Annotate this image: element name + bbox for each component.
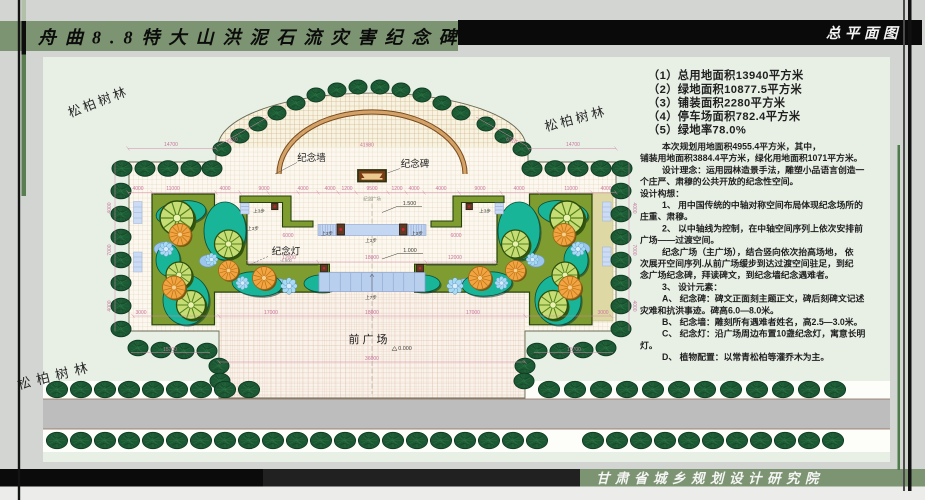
svg-text:设计理念：运用园林造景手法，雕塑小品语言创造一: 设计理念：运用园林造景手法，雕塑小品语言创造一 — [662, 164, 865, 175]
svg-text:广场——过渡空间。: 广场——过渡空间。 — [640, 234, 719, 245]
svg-text:C、 纪念灯：沿广场周边布置10盏纪念灯，寓意长明: C、 纪念灯：沿广场周边布置10盏纪念灯，寓意长明 — [662, 328, 866, 339]
svg-text:4000: 4000 — [107, 202, 113, 213]
svg-text:甘肃省城乡规划设计研究院: 甘肃省城乡规划设计研究院 — [596, 471, 824, 486]
svg-text:A、 纪念碑：碑文正面刻主题正文，碑后刻碑文记述: A、 纪念碑：碑文正面刻主题正文，碑后刻碑文记述 — [662, 293, 865, 304]
svg-text:-4.900: -4.900 — [280, 258, 293, 263]
svg-text:（3）铺装面积2280平方米: （3）铺装面积2280平方米 — [648, 96, 786, 110]
svg-text:D、 植物配置：以常青松柏等灌乔木为主。: D、 植物配置：以常青松柏等灌乔木为主。 — [662, 351, 829, 362]
svg-text:舟曲8.8特大山洪泥石流灾害纪念碑: 舟曲8.8特大山洪泥石流灾害纪念碑 — [37, 28, 466, 48]
svg-text:7000: 7000 — [107, 244, 113, 255]
svg-text:0.000: 0.000 — [398, 346, 412, 352]
svg-text:（1）总用地面积13940平方米: （1）总用地面积13940平方米 — [648, 68, 804, 82]
svg-text:3、 设计元素：: 3、 设计元素： — [662, 281, 722, 292]
svg-text:15700: 15700 — [163, 347, 177, 353]
svg-text:14700: 14700 — [164, 142, 178, 148]
svg-text:4000: 4000 — [631, 300, 637, 311]
svg-text:纪念墙: 纪念墙 — [297, 152, 326, 164]
svg-text:次展开空间序列.从前广场缓步到达过渡空间驻足，到纪: 次展开空间序列.从前广场缓步到达过渡空间驻足，到纪 — [640, 258, 854, 269]
svg-text:上3步: 上3步 — [479, 208, 491, 215]
svg-text:灯。: 灯。 — [640, 339, 658, 350]
svg-text:4000: 4000 — [513, 186, 524, 192]
svg-text:18000: 18000 — [365, 310, 379, 316]
svg-text:（5）绿地率78.0%: （5）绿地率78.0% — [648, 123, 746, 137]
svg-text:上3步: 上3步 — [253, 208, 265, 215]
svg-text:上3步: 上3步 — [321, 230, 333, 237]
svg-text:3000: 3000 — [135, 310, 146, 316]
svg-text:（4）停车场面积782.4平方米: （4）停车场面积782.4平方米 — [648, 109, 801, 123]
svg-text:12000: 12000 — [448, 255, 462, 261]
svg-text:4000: 4000 — [408, 186, 419, 192]
svg-text:7000: 7000 — [631, 244, 637, 255]
svg-text:纪念广场: 纪念广场 — [363, 196, 381, 203]
svg-text:上7步: 上7步 — [365, 294, 377, 301]
svg-text:4000: 4000 — [132, 186, 143, 192]
svg-text:铺装用地面积3884.4平方米，绿化用地面积1071平方米。: 铺装用地面积3884.4平方米，绿化用地面积1071平方米。 — [640, 152, 862, 163]
svg-text:念广场纪念碑，拜读碑文，到纪念墙纪念遇难者。: 念广场纪念碑，拜读碑文，到纪念墙纪念遇难者。 — [639, 269, 834, 280]
svg-text:6000: 6000 — [282, 233, 293, 239]
svg-text:9000: 9000 — [258, 186, 269, 192]
svg-text:4000: 4000 — [297, 186, 308, 192]
svg-text:9500: 9500 — [366, 186, 377, 192]
svg-text:4000: 4000 — [600, 186, 611, 192]
svg-text:1、 用中国传统的中轴对称空间布局体现纪念场所的: 1、 用中国传统的中轴对称空间布局体现纪念场所的 — [662, 199, 863, 210]
svg-text:1.500: 1.500 — [403, 201, 417, 207]
svg-text:前广场: 前广场 — [349, 332, 391, 346]
svg-text:上3步: 上3步 — [247, 225, 259, 232]
svg-text:B、 纪念墙：雕刻所有遇难者姓名，高2.5—3.0米。: B、 纪念墙：雕刻所有遇难者姓名，高2.5—3.0米。 — [662, 316, 862, 327]
svg-text:4000: 4000 — [324, 186, 335, 192]
svg-text:3000: 3000 — [597, 310, 608, 316]
svg-text:14700: 14700 — [566, 142, 580, 148]
svg-text:17000: 17000 — [264, 310, 278, 316]
svg-text:36000: 36000 — [365, 356, 379, 362]
svg-text:2、 以中轴线为控制，在中轴空间序列上依次安排前: 2、 以中轴线为控制，在中轴空间序列上依次安排前 — [662, 222, 863, 233]
svg-text:灾难和抗洪事迹。碑高6.0—8.0米。: 灾难和抗洪事迹。碑高6.0—8.0米。 — [640, 304, 779, 315]
svg-text:17000: 17000 — [466, 310, 480, 316]
svg-text:1.000: 1.000 — [403, 248, 417, 254]
svg-text:15700: 15700 — [567, 347, 581, 353]
svg-text:（2）绿地面积10877.5平方米: （2）绿地面积10877.5平方米 — [648, 82, 803, 96]
svg-text:1200: 1200 — [391, 186, 402, 192]
svg-text:4000: 4000 — [435, 186, 446, 192]
svg-text:4000: 4000 — [631, 202, 637, 213]
svg-text:纪念广场（主广场），结合竖向依次抬高场地， 依: 纪念广场（主广场），结合竖向依次抬高场地， 依 — [662, 246, 854, 257]
svg-text:41980: 41980 — [360, 143, 374, 149]
svg-text:纪念灯: 纪念灯 — [272, 246, 301, 258]
svg-text:11000: 11000 — [564, 186, 578, 192]
svg-text:设计构想：: 设计构想： — [640, 187, 684, 198]
svg-text:纪念碑: 纪念碑 — [401, 158, 430, 170]
svg-text:11000: 11000 — [166, 186, 180, 192]
svg-text:18000: 18000 — [365, 255, 379, 261]
svg-text:上3步: 上3步 — [411, 230, 423, 237]
svg-text:4000: 4000 — [107, 300, 113, 311]
svg-text:个庄严、肃穆的公共开放的纪念性空间。: 个庄严、肃穆的公共开放的纪念性空间。 — [639, 176, 798, 187]
svg-text:6000: 6000 — [450, 233, 461, 239]
svg-text:上3步: 上3步 — [365, 237, 377, 244]
svg-text:1200: 1200 — [341, 186, 352, 192]
svg-text:庄重、肃穆。: 庄重、肃穆。 — [640, 211, 693, 222]
svg-text:9000: 9000 — [474, 186, 485, 192]
svg-text:4000: 4000 — [219, 186, 230, 192]
svg-text:总平面图: 总平面图 — [826, 25, 902, 42]
svg-text:本次规划用地面积4955.4平方米，其中，: 本次规划用地面积4955.4平方米，其中， — [661, 141, 821, 152]
